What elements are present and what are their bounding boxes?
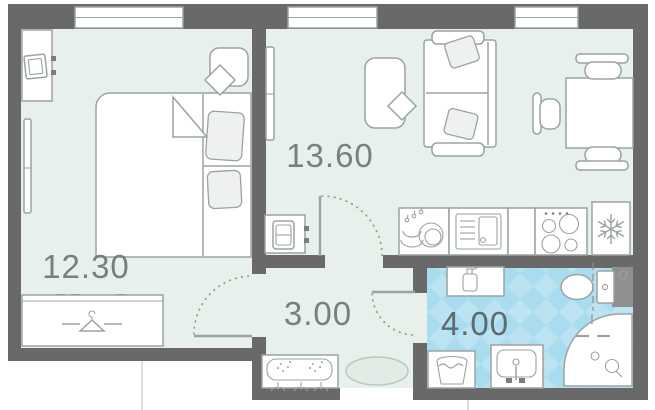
bed <box>96 93 251 257</box>
bedroom-area-label: 12.30 <box>40 250 132 283</box>
bathroom-sink <box>491 345 543 388</box>
dining-table <box>566 78 633 148</box>
tv-icon <box>273 221 294 249</box>
counter <box>508 208 535 255</box>
kitchen-sink-unit <box>399 207 449 255</box>
radiator <box>266 47 274 140</box>
duct-box <box>612 267 633 307</box>
shoe-bench <box>262 355 338 391</box>
sofa <box>424 31 496 156</box>
stove <box>535 208 587 255</box>
bathroom-shelf <box>447 267 504 296</box>
tv-stand <box>265 215 309 253</box>
floor-plan: 12.30 13.60 3.00 4.00 <box>0 0 655 410</box>
fridge <box>592 202 630 255</box>
dishwasher <box>449 208 508 255</box>
wardrobe <box>22 294 163 346</box>
dresser <box>22 30 56 101</box>
window <box>515 7 578 28</box>
washing-machine <box>428 351 475 388</box>
doormat <box>346 357 408 385</box>
floor-plan-graphic <box>0 0 655 410</box>
pillow <box>205 111 244 161</box>
hallway-area-label: 3.00 <box>276 297 360 330</box>
bathroom-area-label: 4.00 <box>434 307 516 340</box>
living-area-label: 13.60 <box>284 139 376 172</box>
tv-icon <box>24 54 47 79</box>
pillow <box>207 170 242 209</box>
window <box>75 7 183 28</box>
radiator <box>24 119 31 213</box>
window <box>288 7 377 28</box>
entrance-opening <box>340 388 413 400</box>
